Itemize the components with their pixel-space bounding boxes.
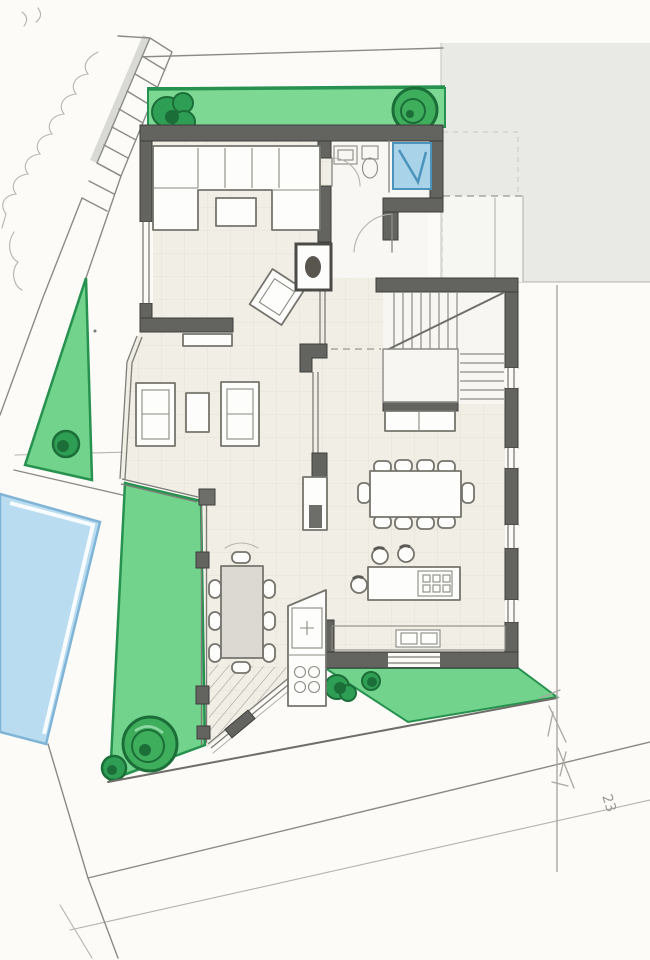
coffee-table <box>216 198 256 226</box>
bush-side-lawn <box>53 431 79 457</box>
veranda-table <box>221 566 263 658</box>
pencil-dot <box>94 330 97 333</box>
stair-floor <box>383 292 505 404</box>
side-table <box>186 393 209 432</box>
sideboard <box>183 334 232 346</box>
kitchen-island <box>368 567 460 600</box>
armchair-right <box>221 382 259 446</box>
understair-cabinet <box>385 411 455 431</box>
kitchenette-west <box>288 590 326 706</box>
kitchen-sink-south <box>396 630 440 647</box>
tree-garden <box>123 717 177 771</box>
column-post <box>199 489 215 505</box>
fireplace <box>296 244 331 290</box>
entry-porch <box>443 196 523 282</box>
bush-garden <box>102 756 126 780</box>
floor-plan-sheet: 23 <box>0 0 650 960</box>
shower <box>393 143 431 189</box>
dining-table <box>370 471 461 517</box>
floor-plan-svg: 23 <box>0 0 650 960</box>
media-cabinet <box>303 477 327 530</box>
armchair-left <box>136 383 175 446</box>
